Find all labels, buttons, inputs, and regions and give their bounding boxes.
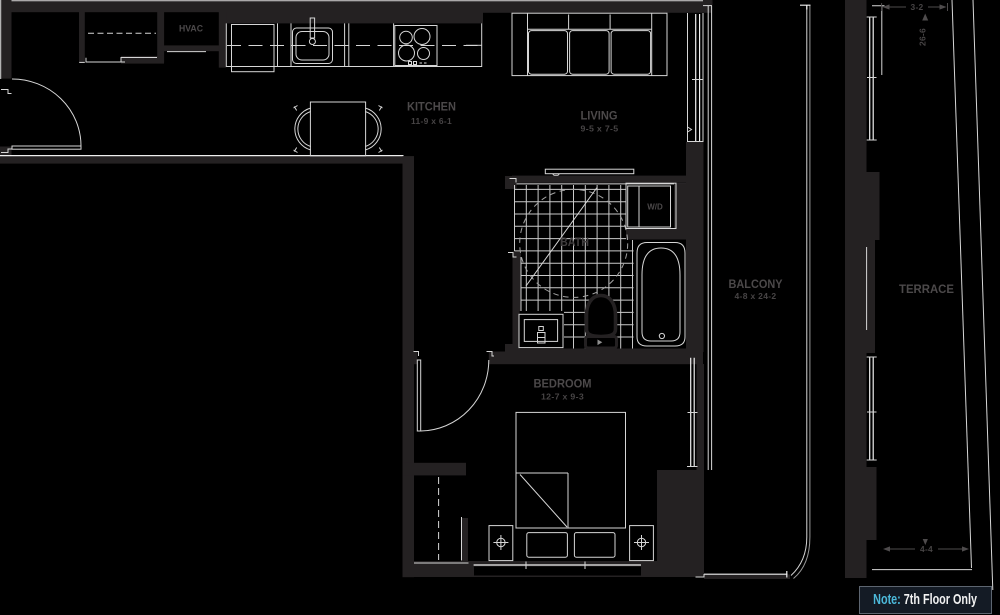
svg-text:HVAC: HVAC (179, 24, 204, 34)
svg-text:3-2: 3-2 (910, 2, 923, 12)
svg-text:9-5 x 7-5: 9-5 x 7-5 (581, 124, 619, 134)
svg-text:12-7 x 9-3: 12-7 x 9-3 (541, 392, 584, 402)
svg-text:KITCHEN: KITCHEN (407, 100, 456, 114)
svg-text:4-8 x 24-2: 4-8 x 24-2 (735, 291, 777, 301)
svg-text:4-4: 4-4 (920, 544, 933, 554)
svg-text:BEDROOM: BEDROOM (534, 377, 592, 391)
svg-text:11-9 x 6-1: 11-9 x 6-1 (411, 116, 452, 126)
svg-text:W/D: W/D (647, 203, 663, 212)
svg-text:BALCONY: BALCONY (729, 277, 783, 291)
svg-text:26-6: 26-6 (918, 28, 928, 46)
svg-text:BATH: BATH (560, 235, 589, 249)
svg-text:LIVING: LIVING (581, 109, 618, 123)
svg-text:TERRACE: TERRACE (899, 282, 954, 296)
